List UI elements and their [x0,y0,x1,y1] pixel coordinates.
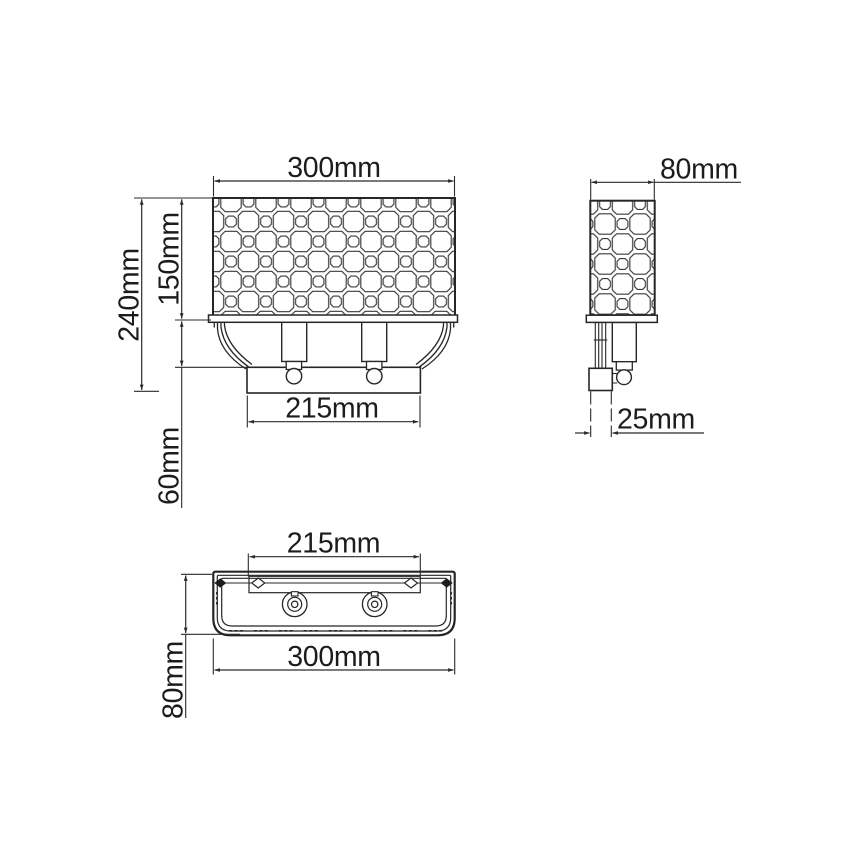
front-right-tube [362,321,387,362]
front-backplate [247,367,420,393]
front-shade-trim [209,315,458,322]
front-left-arm [214,323,252,370]
front-shade-panel [213,198,455,316]
side-view [586,201,657,391]
dimension-drawing: 300mm 240mm 150mm 60mm 215mm [0,0,868,868]
side-mount-box [589,368,612,390]
label-side-wall-plate: 25mm [617,404,695,436]
side-wall-strips [594,322,607,368]
side-socket [616,362,632,370]
side-tube [612,322,636,361]
side-shade-panel [590,201,654,316]
side-knob [617,370,632,385]
top-socket-left [282,592,307,617]
label-front-shade-height: 150mm [154,212,186,306]
front-left-tube [282,321,307,362]
top-screw-diamond-right [405,578,418,588]
label-top-depth: 80mm [158,641,190,719]
top-view [213,572,454,636]
top-dimensions: 215mm 300mm 80mm [158,528,455,719]
label-top-width: 300mm [287,641,381,673]
label-side-depth: 80mm [660,154,738,186]
technical-drawing-sheet: 300mm 240mm 150mm 60mm 215mm [0,0,868,868]
side-shade-trim [586,315,657,322]
label-front-total-height: 240mm [114,248,146,342]
front-right-knob [367,369,382,384]
top-screw-diamond-left [252,578,265,588]
front-right-arm [416,323,454,370]
front-left-knob [286,369,301,384]
label-top-plate-width: 215mm [287,528,381,560]
top-socket-right [362,592,387,617]
front-view [209,198,458,393]
top-corner-diamond-left [214,578,226,587]
label-front-plate-width: 215mm [285,393,379,425]
label-front-width: 300mm [287,152,381,184]
label-front-offset: 60mm [154,427,186,505]
